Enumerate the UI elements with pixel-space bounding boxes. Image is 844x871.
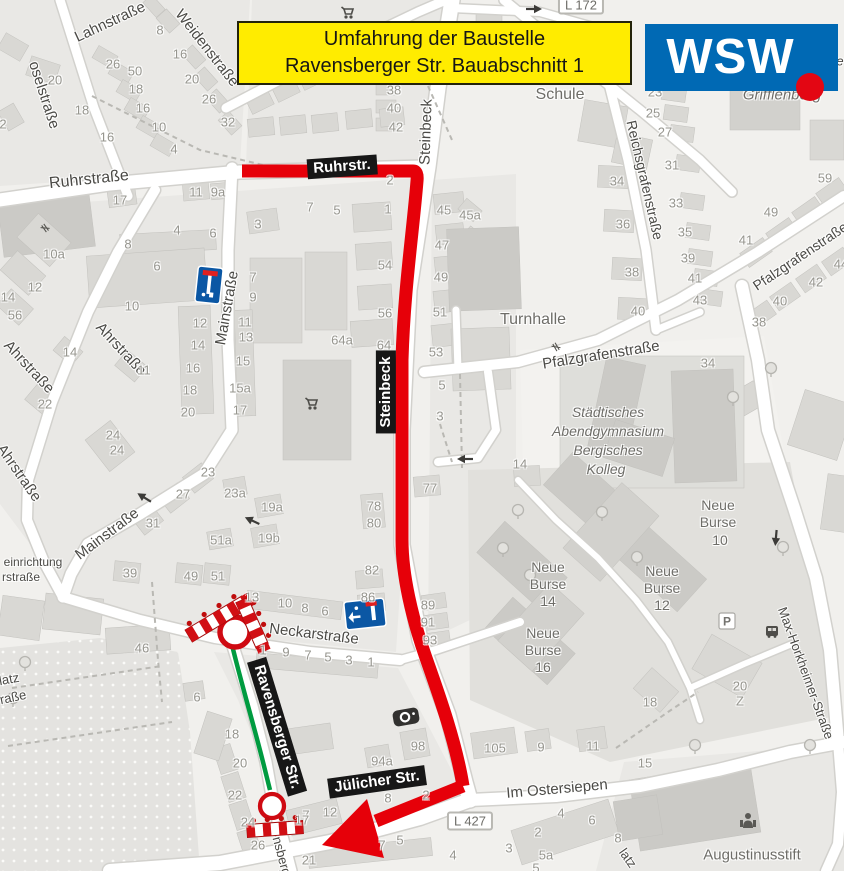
highlighted-street-label: Ruhrstr. [307, 154, 378, 179]
house-number: 23a [224, 486, 246, 501]
house-number: 3 [254, 217, 261, 232]
house-number: 26 [202, 92, 216, 107]
house-number: 5 [438, 378, 445, 393]
house-number: 33 [669, 196, 683, 211]
house-number: 6 [321, 604, 328, 619]
house-number: 49 [434, 270, 448, 285]
house-number: 41 [688, 271, 702, 286]
poi-label: Neue [701, 497, 734, 513]
house-number: 78 [367, 499, 381, 514]
house-number: 17 [233, 403, 247, 418]
house-number: 35 [678, 225, 692, 240]
street-label: Ruhrstraße [48, 167, 129, 193]
poi-label: 14 [540, 593, 556, 609]
house-number: 16 [186, 361, 200, 376]
house-number: 17 [113, 193, 127, 208]
poi-label: Burse [700, 514, 737, 530]
house-number: 14 [1, 290, 15, 305]
house-number: 38 [752, 315, 766, 330]
house-number: 10a [43, 247, 65, 262]
house-number: 32 [221, 115, 235, 130]
house-number: 2 [386, 173, 393, 188]
house-number: 12 [28, 280, 42, 295]
street-label: Mainstraße [72, 505, 142, 564]
house-number: 8 [301, 601, 308, 616]
house-number: 34 [610, 174, 624, 189]
map-labels-layer: oselstraßeLahnstraßeWeidenstraßeRuhrstra… [0, 0, 844, 871]
house-number: 6 [153, 259, 160, 274]
poi-label: Neue [531, 559, 564, 575]
street-label: Lahnstraße [72, 0, 148, 46]
street-label: raße [0, 687, 28, 707]
poi-label: Kolleg [587, 461, 626, 477]
poi-label: Burse [530, 576, 567, 592]
highlighted-street-label: Jülicher Str. [327, 765, 427, 799]
house-number: 8 [614, 831, 621, 846]
house-number: 94a [371, 754, 393, 769]
house-number: 16 [100, 130, 114, 145]
house-number: 54 [378, 258, 392, 273]
map-canvas: P≠≠ oselstraßeLahnstraßeWeidenstraßeRuhr… [0, 0, 844, 871]
house-number: 5 [396, 833, 403, 848]
street-label: rstraße [2, 570, 40, 584]
street-label: Pfalzgrafenstraße [750, 218, 844, 293]
house-number: 42 [809, 275, 823, 290]
house-number: 39 [681, 251, 695, 266]
house-number: 91 [421, 615, 435, 630]
house-number: 23 [201, 465, 215, 480]
house-number: 41 [739, 233, 753, 248]
house-number: 9a [211, 185, 225, 200]
house-number: 10 [152, 120, 166, 135]
house-number: 51a [210, 533, 232, 548]
house-number: 93 [423, 633, 437, 648]
street-label: Ahrstraße [0, 337, 57, 397]
house-number: 34 [701, 356, 715, 371]
house-number: 82 [365, 563, 379, 578]
poi-label: Augustinusstift [703, 847, 801, 864]
house-number: 10 [125, 299, 139, 314]
house-number: 2 [422, 788, 429, 803]
house-number: 7 [306, 200, 313, 215]
house-number: 1 [259, 643, 266, 658]
house-number: 20 [733, 679, 747, 694]
road-ref-badge: L 427 [447, 812, 493, 831]
house-number: 18 [129, 82, 143, 97]
poi-label: Neue [645, 563, 678, 579]
house-number: 11 [189, 185, 203, 200]
poi-label: Städtisches [572, 404, 644, 420]
house-number: 2 [534, 825, 541, 840]
house-number: 44 [834, 257, 844, 272]
house-number: 20 [48, 73, 62, 88]
house-number: 39 [123, 566, 137, 581]
street-label: einrichtung [4, 555, 63, 569]
house-number: 12 [323, 805, 337, 820]
house-number: 14 [63, 345, 77, 360]
house-number: 56 [378, 306, 392, 321]
house-number: 105 [484, 741, 506, 756]
street-label: latz [616, 845, 640, 870]
wsw-logo-dot-icon [796, 73, 824, 101]
house-number: 26 [106, 57, 120, 72]
house-number: 8 [384, 791, 391, 806]
house-number: 18 [75, 103, 89, 118]
house-number: 45 [437, 203, 451, 218]
house-number: 59 [818, 171, 832, 186]
house-number: 4 [449, 848, 456, 863]
wsw-logo-text: WSW [666, 33, 816, 82]
house-number: 42 [389, 120, 403, 135]
poi-label: Burse [644, 580, 681, 596]
house-number: 38 [625, 265, 639, 280]
house-number: 11 [137, 363, 151, 378]
house-number: 15a [229, 381, 251, 396]
house-number: 45a [459, 208, 481, 223]
house-number: 53 [429, 345, 443, 360]
house-number: 22 [228, 788, 242, 803]
banner-line1: Umfahrung der Baustelle [324, 26, 545, 53]
street-label: Max-Horkheimer-Straße [775, 605, 837, 741]
street-label: latz [0, 670, 20, 688]
poi-label: Turnhalle [500, 311, 566, 329]
street-label: Im Ostersiepen [506, 776, 609, 802]
house-number: 20 [181, 405, 195, 420]
house-number: 26 [251, 838, 265, 853]
house-number: 18 [183, 383, 197, 398]
street-label: Mainstraße [212, 270, 242, 347]
house-number: 15 [638, 756, 652, 771]
house-number: 20 [233, 756, 247, 771]
poi-label: 12 [654, 597, 670, 613]
poi-label: 16 [535, 659, 551, 675]
street-label: Pfalzgrafenstraße [541, 337, 661, 372]
house-number: 4 [173, 223, 180, 238]
house-number: 46 [135, 641, 149, 656]
banner-line2: Ravensberger Str. Bauabschnitt 1 [285, 53, 584, 80]
house-number: 9 [249, 290, 256, 305]
house-number: 8 [156, 23, 163, 38]
house-number: 13 [239, 330, 253, 345]
house-number: 15 [236, 354, 250, 369]
house-number: 31 [665, 158, 679, 173]
house-number: 2 [0, 117, 7, 132]
house-number: 31 [146, 516, 160, 531]
house-number: 3 [505, 841, 512, 856]
house-number: 17 [295, 813, 309, 828]
highlighted-street-label: Steinbeck [376, 351, 396, 434]
house-number: 98 [411, 739, 425, 754]
house-number: 9 [282, 645, 289, 660]
house-number: 5a [539, 848, 553, 863]
poi-label: 10 [712, 532, 728, 548]
house-number: 43 [693, 293, 707, 308]
house-number: 56 [8, 308, 22, 323]
house-number: 24 [110, 443, 124, 458]
house-number: 49 [184, 569, 198, 584]
house-number: 5 [324, 650, 331, 665]
house-number: 64a [331, 333, 353, 348]
house-number: 5 [532, 861, 539, 871]
street-label: nsberg [270, 835, 295, 871]
house-number: 11 [238, 315, 252, 330]
house-number: 89 [421, 598, 435, 613]
house-number: 24 [106, 428, 120, 443]
house-number: 4 [557, 806, 564, 821]
house-number: 12 [193, 316, 207, 331]
house-number: 4 [170, 142, 177, 157]
house-number: 77 [423, 481, 437, 496]
house-number: 27 [658, 125, 672, 140]
house-number: 19a [261, 500, 283, 515]
house-number: 14 [513, 457, 527, 472]
poi-label: Burse [525, 642, 562, 658]
house-number: 8 [124, 237, 131, 252]
house-number: 47 [435, 238, 449, 253]
house-number: 1 [367, 655, 374, 670]
street-label: Ahrstraße [0, 441, 45, 505]
street-label: oselstraße [25, 59, 63, 131]
house-number: 14 [191, 338, 205, 353]
poi-label: Schule [536, 86, 585, 104]
poi-label: Bergisches [573, 442, 642, 458]
house-number: 18 [225, 727, 239, 742]
house-number: 24 [241, 815, 255, 830]
house-number: Z [736, 694, 744, 709]
house-number: 6 [209, 226, 216, 241]
house-number: 25 [646, 106, 660, 121]
house-number: 50 [128, 64, 142, 79]
house-number: 49 [764, 205, 778, 220]
house-number: 9 [537, 740, 544, 755]
house-number: 6 [193, 690, 200, 705]
house-number: 27 [176, 487, 190, 502]
house-number: 18 [643, 695, 657, 710]
house-number: 36 [616, 217, 630, 232]
street-label: Steinbeck [416, 99, 435, 165]
house-number: 3 [436, 409, 443, 424]
house-number: 86 [361, 590, 375, 605]
house-number: 11 [586, 739, 600, 754]
house-number: 80 [367, 516, 381, 531]
house-number: 5 [333, 203, 340, 218]
highlighted-street-label: Ravensberger Str. [247, 657, 307, 797]
house-number: 3 [345, 653, 352, 668]
house-number: 13 [245, 590, 259, 605]
house-number: 51 [211, 569, 225, 584]
poi-label: Abendgymnasium [552, 423, 664, 439]
house-number: 40 [773, 294, 787, 309]
detour-banner: Umfahrung der Baustelle Ravensberger Str… [237, 21, 632, 85]
poi-label: Neue [526, 625, 559, 641]
house-number: 7 [378, 838, 385, 853]
house-number: 6 [588, 813, 595, 828]
house-number: 21 [302, 853, 316, 868]
house-number: 16 [173, 47, 187, 62]
house-number: 40 [631, 304, 645, 319]
house-number: 16 [136, 101, 150, 116]
house-number: 22 [38, 397, 52, 412]
house-number: 7 [249, 270, 256, 285]
road-ref-badge: L 172 [558, 0, 604, 15]
house-number: 10 [278, 596, 292, 611]
house-number: 1 [384, 202, 391, 217]
house-number: 7 [304, 648, 311, 663]
house-number: 20 [185, 72, 199, 87]
house-number: 40 [387, 101, 401, 116]
house-number: 19b [258, 531, 280, 546]
house-number: 51 [433, 305, 447, 320]
wsw-logo: WSW [645, 24, 838, 91]
